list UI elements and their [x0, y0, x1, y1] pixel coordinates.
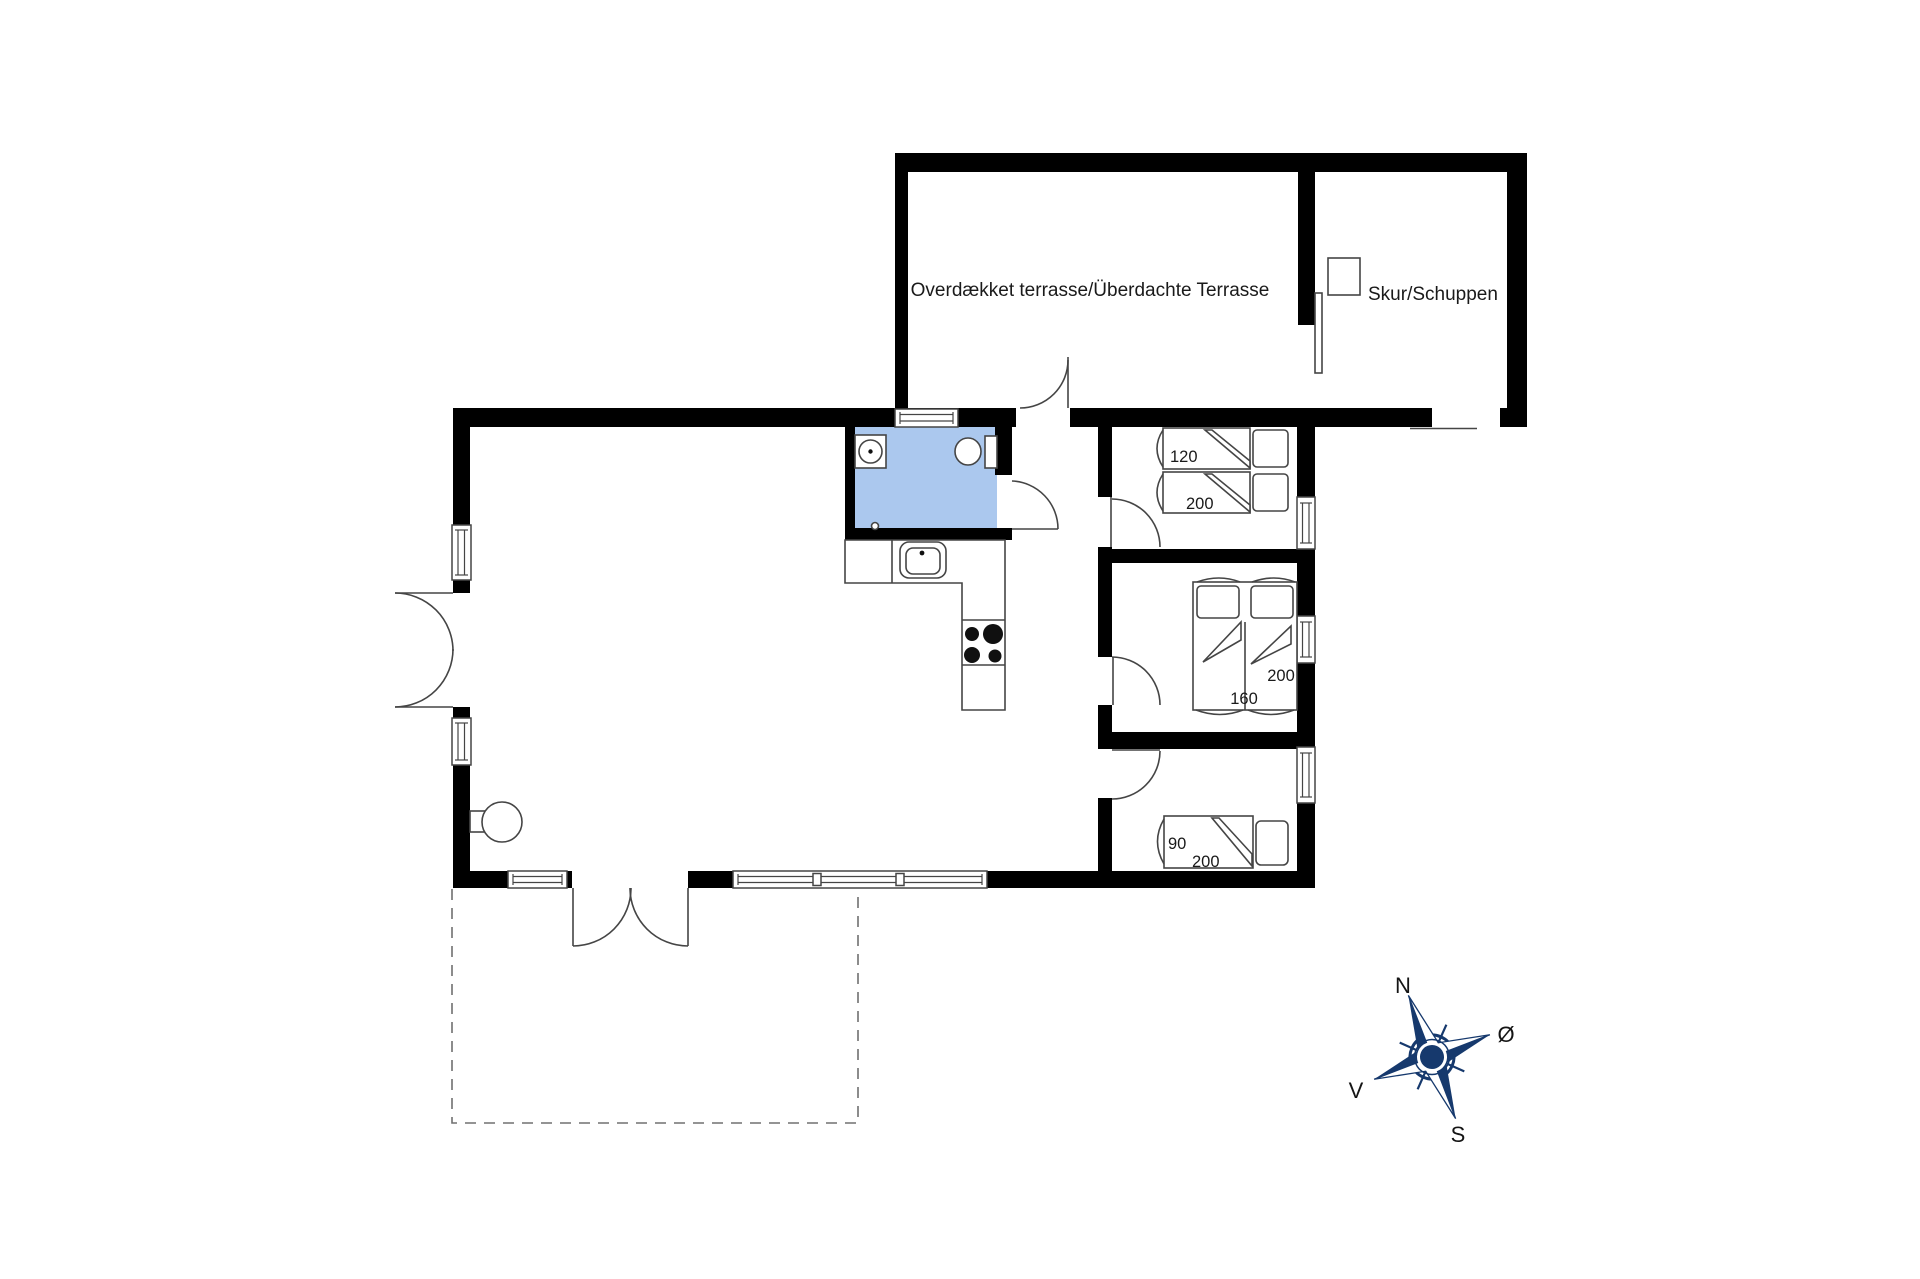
floor-plan-canvas: 120 200 160 200 90 200 Overdækket terras… [0, 0, 1920, 1279]
compass-east-label: Ø [1497, 1022, 1514, 1047]
bed-pillow [1253, 430, 1288, 467]
bedroom2-bed: 160 200 [1193, 578, 1297, 715]
bedroom3-bed: 90 200 [1158, 816, 1289, 871]
door-bedroom2 [1112, 657, 1160, 705]
door-bedroom1 [1111, 497, 1160, 547]
door-shed-side-leaf [1315, 293, 1322, 373]
bed-length-label: 200 [1267, 667, 1295, 685]
wall-bedroom2-3 [1112, 732, 1297, 749]
door-terrace-to-house [1020, 357, 1068, 408]
opening-bedroom2-door [1096, 657, 1114, 705]
shed-fixture-icon [1328, 258, 1360, 295]
wall-terrace-left [895, 153, 908, 408]
wood-stove-icon [470, 802, 522, 842]
opening-bedroom3-door [1096, 749, 1114, 798]
wall-shed-right [1507, 153, 1527, 427]
shower-icon [855, 435, 886, 468]
compass-south-label: S [1451, 1122, 1466, 1147]
bed-pillow [1256, 821, 1288, 865]
covered-terrace-label: Overdækket terrasse/Überdachte Terrasse [911, 280, 1270, 301]
open-terrace-dashed-outline [452, 889, 858, 1123]
window-bottom-small-icon [508, 871, 567, 888]
wall-bedroom1-2 [1112, 549, 1297, 563]
bed-pillow [1253, 474, 1288, 511]
bed-foot-curve [1157, 474, 1163, 511]
window-bedroom3-icon [1297, 747, 1315, 803]
bed-foot-curve [1158, 819, 1165, 864]
bedroom1-beds: 120 200 [1157, 428, 1288, 513]
window-bottom-long-icon [733, 871, 987, 888]
door-bathroom [1012, 481, 1058, 529]
wall-terrace-shed-divider [1298, 172, 1315, 325]
wall-terrace-shed-top [895, 153, 1527, 172]
opening-left-double-door [452, 593, 471, 707]
wall-bath-bottom [845, 528, 1012, 540]
sink-icon [900, 542, 946, 578]
bed-length-label: 200 [1186, 495, 1214, 513]
bed-width-label: 120 [1170, 448, 1198, 466]
bed-length-label: 200 [1192, 853, 1220, 871]
bed-pillow [1251, 586, 1293, 618]
window-left-2-icon [452, 718, 471, 765]
door-left-double [395, 593, 453, 707]
compass-rose-icon: N Ø S V [1349, 973, 1515, 1147]
wall-house-top [453, 408, 1527, 427]
bed-foot-curve [1157, 430, 1163, 467]
shed-label: Skur/Schuppen [1368, 284, 1498, 305]
bed-width-label: 160 [1230, 690, 1258, 708]
compass-west-label: V [1349, 1078, 1364, 1103]
floor-drain-icon [872, 523, 879, 530]
compass-north-label: N [1395, 973, 1411, 998]
door-bedroom3 [1112, 750, 1160, 799]
kitchen [845, 540, 1005, 710]
opening-terrace-door [1016, 407, 1070, 428]
wall-bath-left [845, 427, 855, 540]
window-bedroom1-icon [1297, 497, 1315, 549]
opening-bottom-double-door [572, 870, 688, 889]
bed-width-label: 90 [1168, 835, 1186, 853]
window-bedroom2-icon [1297, 616, 1315, 663]
window-bathroom-icon [895, 409, 958, 427]
bed-pillow [1197, 586, 1239, 618]
window-left-1-icon [452, 525, 471, 580]
door-bottom-double [573, 888, 688, 946]
opening-shed-south [1432, 407, 1500, 428]
wall-corridor [1098, 427, 1112, 871]
